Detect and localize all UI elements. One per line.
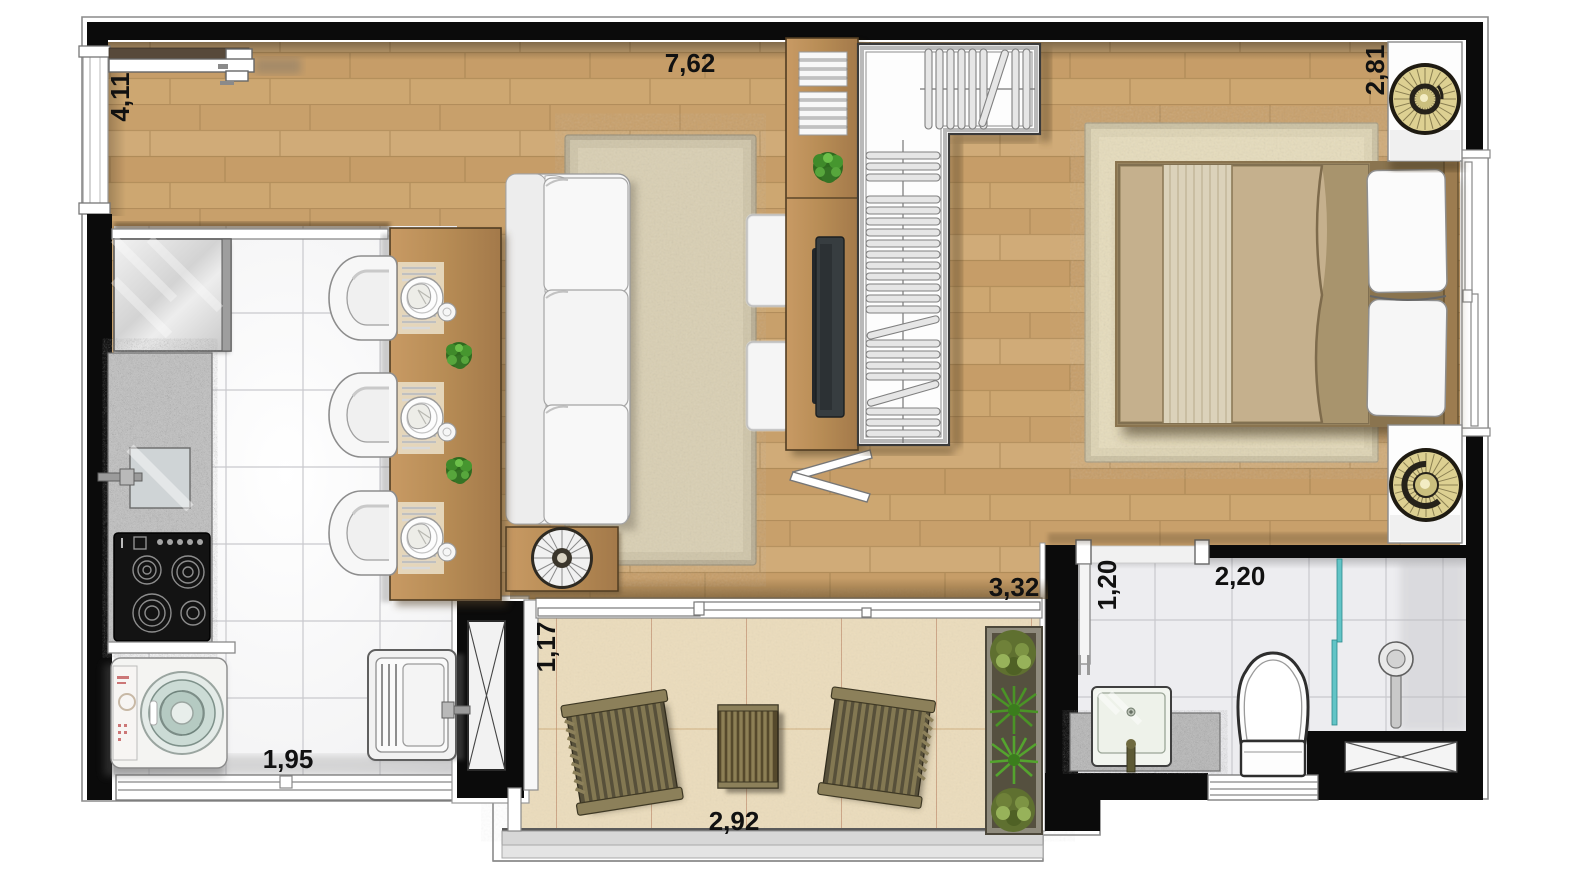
svg-text:2,81: 2,81: [1360, 45, 1390, 96]
svg-text:3,32: 3,32: [989, 572, 1040, 602]
svg-text:1,95: 1,95: [263, 744, 314, 774]
svg-text:7,62: 7,62: [665, 48, 716, 78]
svg-text:1,17: 1,17: [531, 622, 561, 673]
svg-text:1,20: 1,20: [1092, 560, 1122, 611]
svg-text:4,11: 4,11: [105, 72, 135, 121]
svg-text:2,20: 2,20: [1215, 561, 1266, 591]
svg-text:2,92: 2,92: [709, 806, 760, 836]
